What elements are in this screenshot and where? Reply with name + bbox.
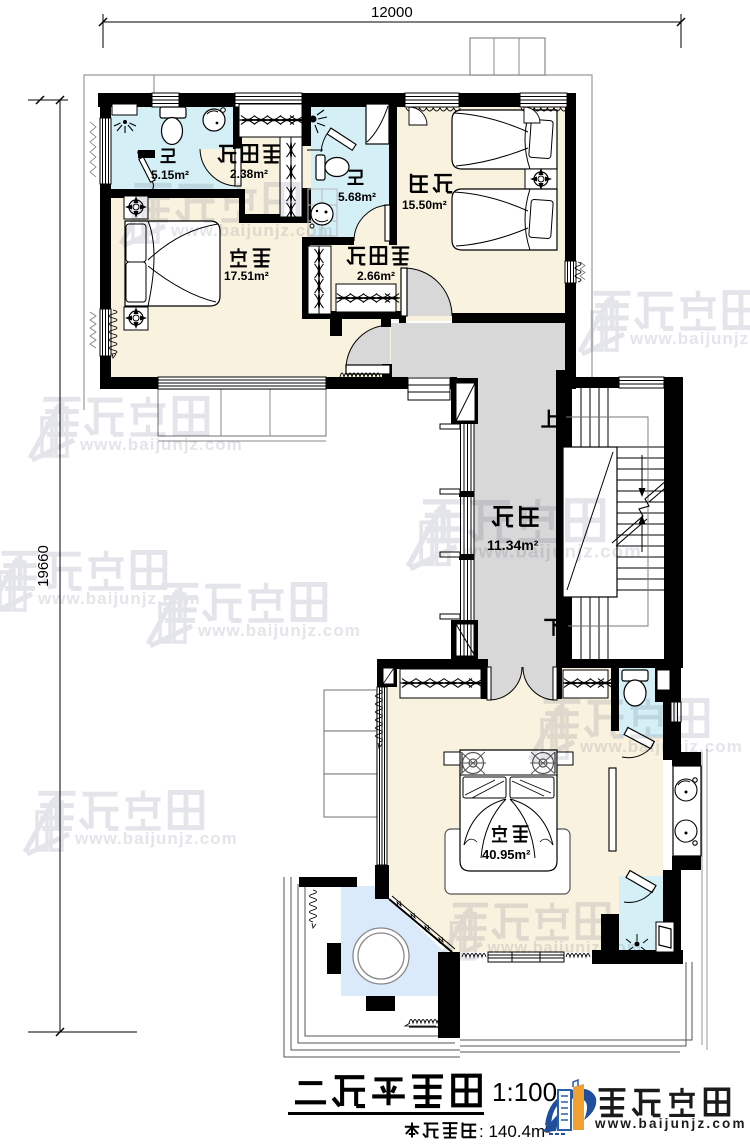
- svg-text:5.15m²: 5.15m²: [151, 168, 189, 182]
- svg-text:40.95m²: 40.95m²: [482, 847, 531, 862]
- svg-text:15.50m²: 15.50m²: [402, 198, 447, 212]
- svg-text:2.66m²: 2.66m²: [357, 269, 395, 283]
- svg-text:5.68m²: 5.68m²: [338, 190, 376, 204]
- svg-text:www.baijunjz.com: www.baijunjz.com: [594, 1116, 747, 1131]
- svg-text:17.51m²: 17.51m²: [224, 269, 269, 283]
- svg-text:1:100: 1:100: [492, 1077, 557, 1107]
- svg-text:: 140.4m²: : 140.4m²: [479, 1122, 551, 1141]
- svg-text:2.38m²: 2.38m²: [230, 167, 268, 181]
- svg-text:12000: 12000: [371, 4, 413, 21]
